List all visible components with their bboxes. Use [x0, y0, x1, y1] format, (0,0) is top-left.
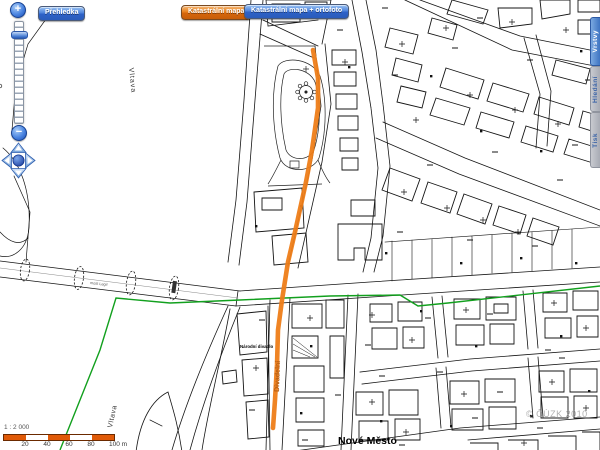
zoom-out-button[interactable]: −: [11, 125, 27, 141]
street-route-label: Divadelní: [274, 360, 282, 392]
map-viewer: Vltava Vltava Nové Město Divadelní Národ…: [0, 0, 600, 450]
river-label-upper: Vltava: [127, 67, 137, 93]
copyright-watermark: © ČÚZK 2010: [526, 409, 588, 419]
overview-button[interactable]: Přehledka: [38, 6, 85, 21]
cadastral-map-button[interactable]: Katastrální mapa: [181, 5, 251, 20]
side-tab-layers[interactable]: Vrstvy: [590, 17, 600, 66]
bridge-piers: [19, 258, 180, 300]
pan-center-button: [13, 155, 24, 166]
side-tab-search[interactable]: Hledání: [590, 66, 600, 112]
cadastral-ortho-button[interactable]: Katastrální mapa + ortofoto: [244, 4, 349, 19]
river-label-lower: Vltava: [107, 404, 119, 428]
scale-ratio-label: 1 : 2 000: [4, 424, 29, 431]
scale-bar: [3, 434, 115, 441]
cadastral-map[interactable]: Vltava Vltava Nové Město Divadelní Národ…: [0, 0, 600, 450]
zoom-in-button[interactable]: +: [10, 2, 26, 18]
fountain-icon: [0, 82, 316, 103]
scale-tick-labels: 20 40 60 80 100 m: [0, 441, 140, 449]
zoom-slider-handle[interactable]: [11, 31, 28, 39]
pan-control[interactable]: [1, 142, 36, 179]
landmark-label: Národní divadlo: [240, 344, 273, 349]
map-linework: [0, 0, 600, 450]
side-tab-print[interactable]: Tisk: [590, 112, 600, 168]
district-label: Nové Město: [338, 435, 397, 447]
park: [0, 46, 330, 186]
bridge-label: most Legií: [90, 281, 109, 287]
